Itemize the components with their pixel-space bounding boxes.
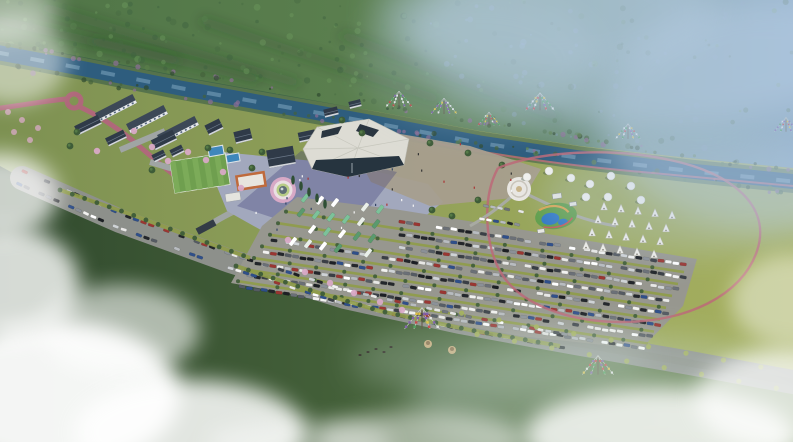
- hedge-tree: [435, 245, 439, 249]
- foliage-dot: [339, 5, 341, 7]
- parked-car: [655, 298, 662, 302]
- pedestrian: [511, 173, 512, 175]
- foliage-dot: [109, 34, 114, 39]
- hedge-tree: [437, 297, 441, 301]
- roadside-bush: [459, 311, 464, 316]
- parked-car: [406, 233, 413, 237]
- hedge-tree: [241, 253, 246, 258]
- foliage-dot: [286, 33, 293, 40]
- foliage-dot: [138, 57, 145, 64]
- parked-car: [641, 295, 648, 299]
- flag: [415, 321, 417, 323]
- hedge-tree: [370, 306, 375, 311]
- foliage-dot: [371, 98, 377, 104]
- parked-car: [425, 288, 432, 292]
- riverbank-vegetation: [526, 147, 529, 150]
- hedge-tree: [507, 256, 511, 260]
- parked-car: [520, 315, 527, 319]
- parked-car: [403, 271, 410, 275]
- hedge-tree: [432, 283, 436, 287]
- hedge-tree: [361, 260, 365, 264]
- hedge-tree: [542, 262, 546, 266]
- tree-highlight: [360, 131, 363, 134]
- pedestrian: [421, 170, 422, 172]
- riverbank-vegetation: [402, 130, 406, 134]
- hedge-tree: [388, 264, 392, 268]
- riverbank-vegetation: [459, 139, 462, 142]
- parked-car: [450, 241, 457, 245]
- hedge-tree: [503, 243, 507, 247]
- foliage-dot: [258, 74, 262, 78]
- pedestrian: [511, 190, 512, 192]
- foliage-dot: [304, 77, 310, 83]
- blossom-tree: [302, 269, 308, 275]
- riverbank-vegetation: [77, 57, 81, 61]
- foliage-dot: [357, 22, 361, 26]
- riverbank-vegetation: [184, 97, 187, 100]
- foliage-dot: [298, 64, 301, 67]
- foliage-dot: [342, 81, 346, 85]
- riverbank-vegetation: [415, 132, 419, 136]
- hedge-tree: [82, 196, 87, 201]
- riverbank-vegetation: [76, 53, 80, 57]
- teepee-door: [585, 247, 587, 249]
- hedge-tree: [283, 280, 288, 285]
- parked-car: [559, 282, 566, 286]
- hedge-tree: [180, 231, 185, 236]
- foliage-dot: [567, 129, 572, 134]
- parked-car: [628, 281, 635, 285]
- foliage-dot: [277, 45, 281, 49]
- parked-car: [440, 278, 447, 282]
- hedge-tree: [598, 309, 602, 313]
- pedestrian: [510, 179, 511, 181]
- foliage-dot: [227, 54, 233, 60]
- riverbank-vegetation: [126, 60, 130, 64]
- riverbank-vegetation: [474, 141, 478, 145]
- parked-car: [658, 259, 665, 263]
- riverbank-vegetation: [363, 99, 366, 102]
- parked-car: [524, 240, 531, 244]
- foliage-dot: [319, 47, 322, 50]
- riverbank-vegetation: [135, 64, 140, 69]
- riverbank-vegetation: [479, 144, 483, 148]
- riverbank-vegetation: [294, 112, 297, 115]
- foliage-dot: [306, 52, 312, 58]
- foliage-dot: [241, 3, 243, 5]
- hedge-tree: [204, 240, 209, 245]
- riverbank-vegetation: [219, 77, 221, 79]
- parked-car: [321, 273, 328, 277]
- foliage-dot: [152, 35, 157, 40]
- foliage-dot: [205, 24, 211, 30]
- riverbank-vegetation: [432, 131, 437, 136]
- riverbank-vegetation: [145, 65, 150, 70]
- hedge-tree: [144, 218, 149, 223]
- foliage-dot: [118, 41, 123, 46]
- hedge-tree: [131, 213, 136, 218]
- hedge-tree: [464, 237, 468, 241]
- parked-car: [663, 298, 670, 302]
- parked-car: [477, 283, 484, 287]
- parked-car: [544, 293, 551, 297]
- hedge-tree: [323, 254, 327, 258]
- hedge-tree: [399, 291, 403, 295]
- blossom-tree: [185, 149, 191, 155]
- parked-car: [307, 257, 314, 261]
- hedge-tree: [511, 308, 515, 312]
- parked-car: [559, 295, 566, 299]
- parked-car: [458, 242, 465, 246]
- riverbank-vegetation: [275, 89, 280, 94]
- cloud: [40, 285, 200, 375]
- foliage-dot: [260, 39, 266, 45]
- parked-car: [647, 309, 654, 313]
- foliage-dot: [170, 19, 177, 26]
- foliage-dot: [350, 53, 355, 58]
- hedge-tree: [535, 273, 539, 277]
- riverbank-vegetation: [81, 77, 86, 82]
- parked-car: [552, 282, 559, 286]
- hedge-tree: [646, 277, 650, 281]
- parked-car: [569, 272, 576, 276]
- foliage-dot: [112, 26, 116, 30]
- pedestrian: [375, 204, 376, 206]
- foliage-dot: [244, 68, 250, 74]
- hedge-tree: [156, 222, 161, 227]
- hedge-tree: [260, 244, 264, 248]
- foliage-dot: [334, 23, 337, 26]
- hedge-tree: [271, 276, 276, 281]
- riverbank-vegetation: [208, 99, 213, 104]
- pedestrian: [460, 143, 461, 145]
- hedge-tree: [217, 244, 222, 249]
- foliage-dot: [359, 86, 365, 92]
- foliage-dot: [127, 9, 133, 15]
- parked-car: [484, 297, 491, 301]
- pedestrian: [359, 175, 360, 177]
- hedge-tree: [403, 279, 407, 283]
- pedestrian: [392, 168, 393, 170]
- foliage-dot: [70, 23, 77, 30]
- parked-car: [351, 264, 358, 268]
- tree-highlight: [430, 208, 433, 211]
- foliage-dot: [96, 51, 102, 57]
- foliage-dot: [280, 73, 282, 75]
- hedge-tree: [580, 267, 584, 271]
- pedestrian: [443, 181, 444, 183]
- hedge-tree: [464, 288, 468, 292]
- foliage-dot: [290, 13, 294, 17]
- parked-car: [380, 281, 387, 285]
- blossom-tree: [238, 185, 244, 191]
- riverbank-vegetation: [512, 146, 514, 148]
- parked-car: [454, 305, 461, 309]
- hedge-tree: [657, 305, 661, 309]
- parked-car: [255, 262, 262, 266]
- hedge-tree: [58, 188, 63, 193]
- tree-highlight: [450, 214, 453, 217]
- parked-car: [446, 317, 453, 321]
- dome-tent: [523, 173, 531, 181]
- poplar-tree: [299, 181, 303, 190]
- hedge-tree: [298, 237, 302, 241]
- foliage-dot: [64, 30, 67, 33]
- flag: [417, 317, 419, 319]
- foliage-dot: [543, 129, 547, 133]
- flag: [405, 326, 407, 328]
- blossom-tree: [165, 158, 171, 164]
- parked-car: [271, 239, 278, 243]
- foliage-dot: [95, 11, 98, 14]
- foliage-dot: [192, 34, 195, 37]
- hedge-tree: [650, 265, 654, 269]
- hedge-tree: [566, 291, 570, 295]
- teepee-door: [619, 251, 621, 253]
- parked-car: [417, 300, 424, 304]
- teepee-door: [636, 253, 638, 255]
- foliage-dot: [570, 136, 572, 138]
- hedge-tree: [295, 284, 300, 289]
- hedge-tree: [333, 295, 338, 300]
- hedge-tree: [422, 269, 426, 273]
- riverbank-vegetation: [549, 131, 553, 135]
- flag: [418, 313, 420, 315]
- parked-car: [298, 295, 305, 299]
- parked-car: [380, 293, 387, 297]
- foliage-dot: [182, 22, 189, 29]
- riverbank-vegetation: [88, 80, 93, 85]
- foliage-dot: [73, 42, 77, 46]
- hedge-tree: [536, 286, 540, 290]
- hedge-tree: [640, 289, 644, 293]
- hedge-tree: [596, 257, 600, 261]
- riverbank-vegetation: [203, 95, 206, 98]
- parked-car: [658, 285, 665, 289]
- parked-car: [591, 262, 598, 266]
- tree-highlight: [75, 130, 78, 133]
- pedestrian: [308, 178, 309, 180]
- parked-car: [565, 309, 572, 313]
- riverbank-vegetation: [144, 85, 149, 90]
- parked-car: [633, 294, 640, 298]
- parked-car: [502, 261, 509, 265]
- hedge-tree: [551, 314, 555, 318]
- hedge-tree: [600, 296, 604, 300]
- parked-car: [495, 234, 502, 238]
- hedge-tree: [471, 264, 475, 268]
- tree-highlight: [250, 166, 253, 169]
- hedge-tree: [573, 279, 577, 283]
- riverbank-vegetation: [315, 114, 318, 117]
- foliage-dot: [204, 65, 208, 69]
- parked-car: [513, 314, 520, 318]
- foliage-dot: [256, 77, 259, 80]
- parked-car: [581, 298, 588, 302]
- pedestrian: [311, 208, 312, 210]
- parked-car: [491, 310, 498, 314]
- foliage-dot: [281, 52, 284, 55]
- hedge-tree: [258, 272, 263, 277]
- hedge-tree: [623, 261, 627, 265]
- parked-car: [462, 294, 469, 298]
- parked-car: [276, 291, 283, 295]
- riverbank-vegetation: [167, 71, 170, 74]
- parked-car: [510, 236, 517, 240]
- foliage-dot: [109, 27, 112, 30]
- parked-car: [246, 286, 253, 290]
- riverbank-vegetation: [317, 93, 321, 97]
- foliage-dot: [113, 31, 116, 34]
- hedge-tree: [229, 249, 234, 254]
- foliage-dot: [555, 133, 558, 136]
- hedge-tree: [236, 279, 240, 283]
- foliage-dot: [125, 22, 130, 27]
- foliage-dot: [327, 78, 332, 83]
- parked-car: [409, 311, 416, 315]
- hedge-tree: [430, 232, 434, 236]
- foliage-dot: [105, 4, 110, 9]
- hedge-tree: [406, 241, 410, 245]
- hedge-tree: [268, 233, 272, 237]
- flag: [408, 321, 410, 323]
- parked-car: [498, 312, 505, 316]
- riverbank-vegetation: [71, 56, 76, 61]
- tree-highlight: [68, 144, 71, 147]
- parked-car: [469, 295, 476, 299]
- parked-car: [447, 291, 454, 295]
- riverbank-vegetation: [109, 81, 112, 84]
- flag: [426, 321, 428, 323]
- parked-car: [477, 296, 484, 300]
- parked-car: [443, 227, 450, 231]
- hedge-tree: [192, 236, 197, 241]
- parked-car: [458, 229, 465, 233]
- hedge-tree: [639, 328, 643, 332]
- hedge-tree: [607, 271, 611, 275]
- hedge-tree: [276, 221, 280, 225]
- foliage-dot: [278, 60, 281, 63]
- foliage-dot: [271, 58, 274, 61]
- foliage-dot: [297, 50, 303, 56]
- hedge-tree: [70, 192, 75, 197]
- parked-car: [536, 292, 543, 296]
- riverbank-vegetation: [230, 78, 234, 82]
- camp-plaza-center: [516, 186, 522, 192]
- pedestrian: [256, 212, 257, 214]
- parked-car: [672, 261, 679, 265]
- parked-car: [473, 244, 480, 248]
- hedge-tree: [437, 258, 441, 262]
- foliage-dot: [161, 60, 166, 65]
- meadow-mist: [350, 320, 650, 400]
- foliage-dot: [254, 4, 261, 11]
- hedge-tree: [288, 249, 292, 253]
- tree-highlight: [340, 118, 343, 121]
- parked-car: [421, 236, 428, 240]
- pedestrian: [401, 199, 402, 201]
- riverbank-vegetation: [386, 107, 389, 110]
- hedge-tree: [383, 310, 388, 315]
- hedge-tree: [609, 285, 613, 289]
- tree-highlight: [466, 151, 469, 154]
- foliage-dot: [198, 30, 200, 32]
- riverbank-vegetation: [116, 86, 121, 91]
- foliage-dot: [122, 2, 128, 8]
- hedge-tree: [627, 300, 631, 304]
- parked-car: [595, 313, 602, 317]
- foliage-dot: [160, 35, 166, 41]
- parked-car: [443, 252, 450, 256]
- parked-car: [382, 256, 389, 260]
- tree-highlight: [150, 168, 153, 171]
- tree-highlight: [206, 146, 209, 149]
- foliage-dot: [323, 16, 326, 19]
- hedge-tree: [107, 204, 112, 209]
- hedge-tree: [246, 268, 251, 273]
- parked-car: [561, 270, 568, 274]
- parked-car: [329, 273, 336, 277]
- riverbank-vegetation: [133, 89, 136, 92]
- riverbank-vegetation: [584, 138, 589, 143]
- hedge-tree: [119, 209, 124, 214]
- foliage-dot: [222, 77, 224, 79]
- riverbank-vegetation: [120, 83, 123, 86]
- parked-car: [485, 271, 492, 275]
- parked-car: [535, 317, 542, 321]
- foliage-dot: [255, 20, 259, 24]
- parked-car: [584, 261, 591, 265]
- riverbank-vegetation: [397, 129, 401, 133]
- hedge-tree: [458, 275, 462, 279]
- foliage-dot: [122, 48, 126, 52]
- tree-highlight: [260, 150, 263, 153]
- pedestrian: [386, 204, 387, 206]
- hedge-tree: [342, 270, 346, 274]
- blossom-tree: [94, 148, 100, 154]
- parked-car: [662, 312, 669, 316]
- blossom-tree: [131, 128, 137, 134]
- parked-car: [424, 300, 431, 304]
- foliage-dot: [102, 38, 105, 41]
- parked-car: [253, 288, 260, 292]
- parked-car: [313, 297, 320, 301]
- blossom-tree: [149, 144, 155, 150]
- riverbank-vegetation: [307, 114, 310, 117]
- foliage-dot: [351, 77, 357, 83]
- blossom-tree: [35, 125, 41, 131]
- pedestrian: [474, 187, 475, 189]
- foliage-dot: [128, 2, 133, 7]
- flag: [412, 317, 414, 319]
- pedestrian: [392, 188, 393, 190]
- flag: [423, 313, 425, 315]
- hedge-tree: [322, 215, 326, 219]
- flag: [426, 313, 428, 315]
- foliage-dot: [215, 46, 221, 52]
- hedge-tree: [168, 227, 173, 232]
- parked-car: [428, 237, 435, 241]
- parked-car: [458, 255, 465, 259]
- foliage-dot: [349, 84, 352, 87]
- parked-car: [284, 267, 291, 271]
- hedge-tree: [497, 280, 501, 284]
- foliage-dot: [116, 10, 122, 16]
- parked-car: [547, 269, 554, 273]
- riverbank-vegetation: [495, 146, 499, 150]
- riverbank-vegetation: [553, 132, 556, 135]
- foliage-dot: [61, 3, 67, 9]
